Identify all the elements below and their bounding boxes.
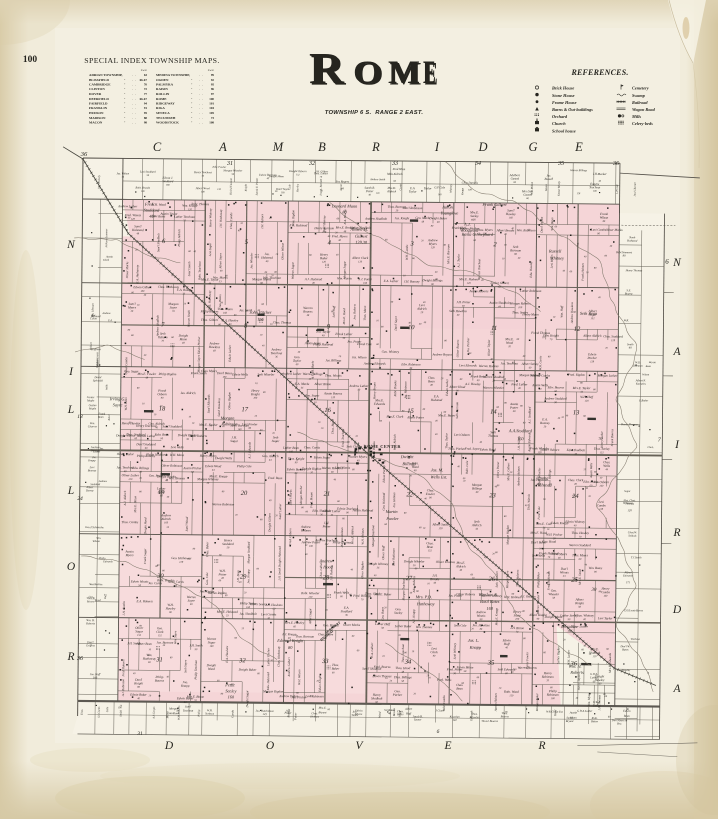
svg-text:Jas. Teachout: Jas. Teachout <box>501 361 519 365</box>
svg-text:E.A. Roberts: E.A. Roberts <box>136 599 154 603</box>
svg-text:Chas. Hathaway: Chas. Hathaway <box>277 646 281 667</box>
svg-text:Frank Sugar: Frank Sugar <box>143 548 147 566</box>
svg-text:11: 11 <box>491 325 497 332</box>
svg-text:Oliver Rigdon: Oliver Rigdon <box>227 392 231 410</box>
svg-text:. .: . . <box>199 73 203 77</box>
svg-text:Oliver Luther: Oliver Luther <box>323 509 341 513</box>
svg-text:Cole: Cole <box>105 706 109 712</box>
svg-text:Thos. Hawley: Thos. Hawley <box>571 531 589 535</box>
svg-text:Brick House: Brick House <box>551 86 574 91</box>
svg-text:Whitney: Whitney <box>550 255 564 260</box>
svg-text:Frank Bourns: Frank Bourns <box>610 428 614 447</box>
svg-text:Oliver Huff: Oliver Huff <box>381 544 385 559</box>
svg-text:Albert Sayre: Albert Sayre <box>218 252 222 269</box>
svg-text:Luther Robinson: Luther Robinson <box>519 289 542 293</box>
svg-text:Morgan Rigdon: Morgan Rigdon <box>506 525 510 546</box>
svg-text:Billings: Billings <box>402 461 416 466</box>
svg-text:Winnis: Winnis <box>545 184 548 191</box>
svg-text:Chas. Whitney: Chas. Whitney <box>575 613 594 617</box>
svg-text:Albert Knight: Albert Knight <box>528 613 547 617</box>
svg-text:Bitton: Bitton <box>591 720 598 723</box>
svg-text:156: 156 <box>257 317 264 322</box>
svg-text:Charver: Charver <box>88 425 98 428</box>
svg-text:Dewey: Dewey <box>85 489 94 492</box>
svg-text:W.O.Milton: W.O.Milton <box>531 181 534 195</box>
svg-text:Luther Seeley: Luther Seeley <box>559 613 578 617</box>
svg-text:E: E <box>423 55 436 91</box>
svg-text:Dwight Sugar: Dwight Sugar <box>245 689 249 708</box>
svg-text:Edwin Sugar: Edwin Sugar <box>313 455 331 459</box>
svg-text:D: D <box>672 604 682 616</box>
svg-text:92: 92 <box>211 78 215 82</box>
svg-text:Knapp: Knapp <box>461 187 464 196</box>
svg-text:Teachout: Teachout <box>631 638 641 641</box>
svg-text:Philip Teachout: Philip Teachout <box>194 660 198 681</box>
svg-text:Bean: Bean <box>456 687 463 691</box>
svg-text:17: 17 <box>242 406 249 413</box>
svg-text:Sam'l Shadbolt: Sam'l Shadbolt <box>156 233 160 252</box>
svg-text:Fred.Winn: Fred.Winn <box>392 167 406 171</box>
svg-text:Edwin Wood: Edwin Wood <box>204 464 222 468</box>
svg-text:Luther Bean: Luther Bean <box>282 446 299 450</box>
svg-text:Celery-beds: Celery-beds <box>632 121 653 126</box>
svg-text:Edwin Gilbert: Edwin Gilbert <box>132 285 151 289</box>
svg-text:A.J. Aldrich: A.J. Aldrich <box>123 490 127 506</box>
svg-text:Whitney: Whitney <box>450 183 453 193</box>
svg-text:Fred. Roberts: Fred. Roberts <box>121 659 125 678</box>
svg-text:Basil Bates: Basil Bates <box>480 599 500 604</box>
svg-text:Andrew Luther: Andrew Luther <box>281 372 302 376</box>
svg-text:120: 120 <box>628 509 633 512</box>
svg-text:Stone House: Stone House <box>552 93 575 98</box>
svg-text:DEERFIELD: DEERFIELD <box>89 97 109 101</box>
svg-text:. .: . . <box>132 102 136 106</box>
svg-text:33: 33 <box>391 161 398 167</box>
svg-text:Thos. Mann: Thos. Mann <box>363 305 367 320</box>
svg-text:Wm. Thomas: Wm. Thomas <box>416 625 433 629</box>
svg-text:A.J.: A.J. <box>463 222 471 227</box>
svg-text:Thomas: Thomas <box>488 434 499 438</box>
svg-text:Warren Wheeler: Warren Wheeler <box>483 386 505 390</box>
svg-text:A.S.Corpis: A.S.Corpis <box>153 707 156 720</box>
svg-text:Henry Bartram: Henry Bartram <box>313 226 334 230</box>
svg-text:Dwight Wheeler: Dwight Wheeler <box>403 559 426 563</box>
svg-text:Albert Aldrich: Albert Aldrich <box>582 334 602 338</box>
svg-text:Bates: Bates <box>622 648 628 651</box>
svg-text:Dan'l Stoddard: Dan'l Stoddard <box>135 442 156 446</box>
svg-text:Brooks: Brooks <box>392 707 396 716</box>
svg-text:Tanner: Tanner <box>414 719 423 722</box>
svg-text:Andrew Taylor: Andrew Taylor <box>278 694 299 698</box>
svg-text:Clark: Clark <box>103 259 110 262</box>
svg-text:A.A.Stoddard: A.A.Stoddard <box>508 428 533 433</box>
svg-text:66-67: 66-67 <box>140 97 148 101</box>
svg-text:Warren Wheeler: Warren Wheeler <box>536 593 540 614</box>
svg-text:Jno.V.Turner: Jno.V.Turner <box>634 181 637 196</box>
svg-text:Oliver Luther: Oliver Luther <box>571 624 589 628</box>
svg-text:Chas. Clark: Chas. Clark <box>568 478 584 482</box>
svg-text:Pettit: Pettit <box>224 682 235 687</box>
svg-text:Geo. Halstead: Geo. Halstead <box>382 492 386 510</box>
svg-text:W.H. Curtis: W.H. Curtis <box>538 355 542 370</box>
svg-text:RAISIN: RAISIN <box>156 87 168 91</box>
svg-text:Mrs.E. Baker: Mrs.E. Baker <box>437 413 456 417</box>
svg-text:Austin Halstead: Austin Halstead <box>352 508 374 512</box>
svg-text:Fred. Potter: Fred. Potter <box>446 667 463 671</box>
svg-text:Seeley: Seeley <box>225 688 236 693</box>
svg-text:Albert Seeley: Albert Seeley <box>521 362 540 366</box>
svg-text:Luther Pitcher: Luther Pitcher <box>266 647 270 667</box>
svg-text:Thos.L.Bourns: Thos.L.Bourns <box>481 720 498 723</box>
svg-text:A: A <box>672 346 681 358</box>
svg-text:I.H.Meeker: I.H.Meeker <box>592 172 608 176</box>
svg-text:ROLLIN: ROLLIN <box>156 92 170 96</box>
svg-text:E: E <box>574 140 583 154</box>
svg-text:36: 36 <box>612 161 619 167</box>
svg-text:FRANKLIN: FRANKLIN <box>89 106 108 110</box>
svg-text:Edw. Shadbolt: Edw. Shadbolt <box>566 448 586 452</box>
svg-text:Wood: Wood <box>95 599 102 602</box>
svg-text:PALMYRA: PALMYRA <box>156 83 174 87</box>
svg-text:Oliver Marks: Oliver Marks <box>343 623 361 627</box>
svg-text:Potter: Potter <box>283 711 292 715</box>
svg-text:Almira M.: Almira M. <box>349 227 368 232</box>
svg-text:Oliver Luther: Oliver Luther <box>122 473 140 477</box>
svg-text:Edw. Robinson: Edw. Robinson <box>400 362 421 366</box>
svg-text:Geo. Cole: Geo. Cole <box>205 572 209 585</box>
svg-text:Sugar: Sugar <box>272 439 280 443</box>
svg-text:E.A. Halstead: E.A. Halstead <box>288 223 307 227</box>
svg-text:Maple: Maple <box>86 399 95 402</box>
svg-text:Jas. Wheeler: Jas. Wheeler <box>249 252 253 269</box>
svg-text:70: 70 <box>144 83 148 87</box>
svg-text:Geo.F.Schmucke: Geo.F.Schmucke <box>85 526 104 529</box>
svg-text:Fowler: Fowler <box>385 516 399 521</box>
svg-text:19: 19 <box>158 489 165 496</box>
svg-text:Bourse: Bourse <box>625 293 634 296</box>
svg-text:Morgan Baker: Morgan Baker <box>535 692 539 712</box>
svg-text:73: 73 <box>211 116 215 120</box>
svg-text:ADRIAN TOWNSHIP,: ADRIAN TOWNSHIP, <box>89 73 123 77</box>
svg-text:Harmon: Harmon <box>632 365 643 368</box>
svg-text:TOWNSHIP 6 S. RANGE 2 EAST.: TOWNSHIP 6 S. RANGE 2 EAST. <box>325 110 424 116</box>
svg-text:Edw. Bourns: Edw. Bourns <box>547 385 565 389</box>
svg-text:18: 18 <box>159 405 166 412</box>
svg-text:. .: . . <box>132 116 136 120</box>
svg-text:Fred. Myers: Fred. Myers <box>331 234 348 238</box>
svg-text:Luther Teachout: Luther Teachout <box>173 215 195 219</box>
svg-text:Philip: Philip <box>198 709 201 717</box>
svg-text:Fred. Bean: Fred. Bean <box>267 476 283 480</box>
svg-text:Hawley: Hawley <box>296 183 299 193</box>
svg-text:A.J. Knapp: A.J. Knapp <box>281 632 297 636</box>
svg-text:105: 105 <box>209 111 214 115</box>
svg-text:Mrs.E. Baker: Mrs.E. Baker <box>373 592 392 596</box>
svg-text:13: 13 <box>77 414 83 420</box>
svg-text:. .: . . <box>199 111 203 115</box>
svg-text:John Pitcher: John Pitcher <box>249 310 271 315</box>
svg-text:122: 122 <box>453 719 458 722</box>
svg-text:Andrew Gilbert: Andrew Gilbert <box>287 657 291 677</box>
svg-text:A.: A. <box>588 653 592 656</box>
svg-text:Edw. Fowler: Edw. Fowler <box>211 166 227 169</box>
svg-text:Roberts: Roberts <box>85 622 95 625</box>
svg-text:Younglove: Younglove <box>441 210 459 215</box>
svg-text:W.H. Mann: W.H. Mann <box>170 453 185 457</box>
svg-text:Warren Billings: Warren Billings <box>302 372 323 376</box>
svg-text:31: 31 <box>226 161 233 167</box>
svg-text:31: 31 <box>136 731 143 737</box>
svg-text:Levi Winnis: Levi Winnis <box>334 466 351 470</box>
svg-text:Taylor: Taylor <box>424 186 433 190</box>
svg-text:Dwight Baker: Dwight Baker <box>238 668 258 672</box>
svg-text:Knapp: Knapp <box>180 684 190 688</box>
svg-text:Wm. Sayre: Wm. Sayre <box>173 630 177 644</box>
svg-text:Halstead: Halstead <box>430 398 443 402</box>
svg-text:Bates: Bates <box>397 712 404 716</box>
svg-text:Andrew Edwards: Andrew Edwards <box>363 361 387 365</box>
svg-text:Mrs.E. Hood: Mrs.E. Hood <box>529 531 547 535</box>
svg-text:J.H. Hathaway: J.H. Hathaway <box>219 209 223 228</box>
svg-text:Potter: Potter <box>293 712 297 721</box>
svg-text:Fred. Myers: Fred. Myers <box>550 552 567 556</box>
svg-text:77: 77 <box>144 92 148 96</box>
svg-text:160: 160 <box>93 676 98 679</box>
svg-text:Jackson Lummer: Jackson Lummer <box>105 228 108 248</box>
svg-text:100: 100 <box>209 97 214 101</box>
svg-text:Oliver Taylor: Oliver Taylor <box>487 339 491 356</box>
svg-text:Teachout: Teachout <box>183 708 194 712</box>
svg-text:Morgan Holmes: Morgan Holmes <box>340 527 344 549</box>
svg-text:35: 35 <box>557 161 564 167</box>
svg-text:MACON: MACON <box>89 121 103 125</box>
svg-text:Seeley: Seeley <box>394 611 403 615</box>
svg-text:Chas. Myers: Chas. Myers <box>201 369 218 373</box>
svg-text:Halstead: Halstead <box>535 482 552 487</box>
svg-text:Orchard: Orchard <box>552 114 568 119</box>
svg-text:Frank Holmes: Frank Holmes <box>581 262 585 282</box>
svg-text:CLINTON: CLINTON <box>89 87 105 91</box>
svg-text:A.J. Stoddard: A.J. Stoddard <box>527 406 531 424</box>
svg-text:DOVER: DOVER <box>89 92 102 96</box>
svg-text:Austin Wells: Austin Wells <box>531 383 549 387</box>
svg-text:R: R <box>537 740 545 752</box>
svg-text:32: 32 <box>238 657 246 664</box>
svg-text:Jas. Wilson: Jas. Wilson <box>352 355 367 359</box>
svg-text:M: M <box>388 55 420 91</box>
svg-text:Thos. Pitcher: Thos. Pitcher <box>448 447 466 451</box>
svg-text:Sam'l Hawkins: Sam'l Hawkins <box>217 397 221 416</box>
svg-text:Holmes: Holmes <box>300 528 312 532</box>
svg-text:Russell: Russell <box>548 248 562 253</box>
svg-text:Wm. Myers: Wm. Myers <box>587 692 591 707</box>
svg-text:108: 108 <box>209 121 214 125</box>
svg-text:139.30: 139.30 <box>355 240 368 245</box>
svg-text:Andrew Smith: Andrew Smith <box>369 178 386 181</box>
svg-text:Andrew Teachout: Andrew Teachout <box>314 538 337 542</box>
svg-text:Seth Hawkins: Seth Hawkins <box>449 309 467 313</box>
svg-text:Edwin Bonney: Edwin Bonney <box>286 467 306 471</box>
svg-text:Leonard Mann: Leonard Mann <box>331 203 358 208</box>
svg-text:Wilson: Wilson <box>93 540 101 543</box>
svg-text:Edwards: Edwards <box>102 560 112 563</box>
svg-text:OGDEN: OGDEN <box>156 78 169 82</box>
svg-text:Warren Robinson: Warren Robinson <box>212 502 235 506</box>
svg-text:Sam'l Shadbolt: Sam'l Shadbolt <box>362 667 381 671</box>
svg-text:Sam'l Marks: Sam'l Marks <box>288 489 292 505</box>
svg-text:Wm. Bates: Wm. Bates <box>589 566 603 570</box>
svg-text:Robt. Brooks: Robt. Brooks <box>393 380 397 398</box>
svg-text:Jas. Aldrich: Jas. Aldrich <box>180 391 196 395</box>
svg-text:Levi Combs: Levi Combs <box>260 612 277 616</box>
svg-text:66-67: 66-67 <box>140 78 148 82</box>
svg-text:Jno. Sugar: Jno. Sugar <box>305 393 320 397</box>
svg-text:A.J. Robinson: A.J. Robinson <box>121 679 125 698</box>
svg-text:. .: . . <box>132 106 136 110</box>
svg-text:Martin: Martin <box>385 509 398 514</box>
svg-text:A.J. Hawley: A.J. Hawley <box>464 382 481 386</box>
svg-text:Jas. M.: Jas. M. <box>431 467 444 472</box>
svg-text:Sam'l Edwards: Sam'l Edwards <box>207 394 211 413</box>
svg-text:Dwight Fowler: Dwight Fowler <box>177 433 198 437</box>
svg-text:Mrs. P.D.: Mrs. P.D. <box>415 594 432 599</box>
svg-text:Edwards: Edwards <box>469 710 473 722</box>
svg-text:Oliver Robinson: Oliver Robinson <box>161 464 182 468</box>
svg-text:A.J. Hawkins: A.J. Hawkins <box>265 603 284 607</box>
svg-text:Bean: Bean <box>624 714 631 718</box>
svg-text:Sellock: Sellock <box>628 535 637 538</box>
svg-text:63: 63 <box>144 73 148 77</box>
svg-text:Bourns: Bourns <box>501 715 509 718</box>
svg-text:Dwight Mann: Dwight Mann <box>268 175 285 178</box>
svg-text:Swamp: Swamp <box>632 93 646 98</box>
svg-text:Curtis: Curtis <box>399 184 402 191</box>
svg-text:L.P.Cole: L.P.Cole <box>616 184 619 195</box>
svg-text:100: 100 <box>23 55 38 65</box>
svg-text:Austin Shadbolt: Austin Shadbolt <box>488 301 509 305</box>
svg-text:F.A.: F.A. <box>107 319 113 322</box>
svg-text:Oliver Marks: Oliver Marks <box>606 228 624 232</box>
svg-text:Dwight Gilbert: Dwight Gilbert <box>268 513 272 533</box>
svg-text:Seth Cole: Seth Cole <box>454 623 467 627</box>
svg-text:Griffins: Griffins <box>86 644 95 647</box>
svg-text:Seth Bean: Seth Bean <box>580 311 597 316</box>
svg-text:Maple: Maple <box>88 407 97 410</box>
svg-text:Jno. A. Bennett: Jno. A. Bennett <box>320 179 323 196</box>
svg-text:Austin Holmes: Austin Holmes <box>494 692 498 712</box>
svg-text:Baker: Baker <box>108 413 111 420</box>
svg-text:School house: School house <box>552 128 576 133</box>
svg-text:W.H. Combs: W.H. Combs <box>405 244 409 260</box>
svg-text:Bryant: Bryant <box>566 720 574 723</box>
svg-text:BLISSFIELD: BLISSFIELD <box>89 78 110 82</box>
svg-text:L: L <box>67 404 74 416</box>
svg-text:J.H. Bonney: J.H. Bonney <box>404 279 420 283</box>
svg-text:Morgan Marks: Morgan Marks <box>251 277 272 281</box>
svg-text:Myers: Myers <box>125 553 135 557</box>
svg-text:Wilson: Wilson <box>642 373 650 376</box>
svg-text:I: I <box>434 140 440 154</box>
svg-text:Edward Knight: Edward Knight <box>276 638 304 643</box>
svg-text:Philip Baker: Philip Baker <box>536 571 540 589</box>
svg-text:J.H. Smith: J.H. Smith <box>277 567 281 580</box>
svg-text:Levi Osborn: Levi Osborn <box>453 433 470 437</box>
svg-text:Church: Church <box>552 121 566 126</box>
svg-text:Mrs.E. Fowler: Mrs.E. Fowler <box>136 372 156 376</box>
svg-text:Seth Whitney: Seth Whitney <box>453 642 457 659</box>
svg-text:123: 123 <box>263 713 268 716</box>
svg-text:Morgan Teachout: Morgan Teachout <box>371 525 375 548</box>
svg-text:R: R <box>66 651 74 663</box>
svg-text:Edwin Whitney: Edwin Whitney <box>564 520 585 524</box>
svg-text:72: 72 <box>144 87 148 91</box>
svg-text:Railroad: Railroad <box>632 100 648 105</box>
svg-text:Wood: Wood <box>208 667 216 671</box>
svg-text:Robt. Wheeler: Robt. Wheeler <box>300 591 320 595</box>
svg-text:Mrs.E. Taylor: Mrs.E. Taylor <box>572 386 591 390</box>
svg-text:Ira Rogers: Ira Rogers <box>335 179 350 183</box>
svg-text:Thos. Seeley: Thos. Seeley <box>512 310 529 314</box>
svg-text:Stoddard: Stoddard <box>90 483 100 486</box>
svg-text:24: 24 <box>77 495 83 502</box>
svg-text:Andrew Stoddard: Andrew Stoddard <box>544 396 568 400</box>
svg-text:Dwight Baker: Dwight Baker <box>428 216 448 220</box>
svg-text:Jno. Hawkins: Jno. Hawkins <box>472 623 490 627</box>
svg-text:MEDINA TOWNSHIP,: MEDINA TOWNSHIP, <box>156 73 190 77</box>
svg-text:Warren Holmes: Warren Holmes <box>479 364 500 368</box>
svg-text:Edwin Winnis: Edwin Winnis <box>130 579 149 583</box>
svg-text:J.Clark: J.Clark <box>436 709 445 712</box>
svg-text:Levi Edwards: Levi Edwards <box>458 363 477 367</box>
svg-text:Austin Wells: Austin Wells <box>589 462 593 479</box>
svg-text:Andrew Bryant: Andrew Bryant <box>431 352 451 356</box>
svg-text:Andrew Luther: Andrew Luther <box>348 384 369 388</box>
svg-text:J.H. Combs: J.H. Combs <box>122 600 126 615</box>
svg-text:Albert Sugar: Albert Sugar <box>308 607 312 625</box>
svg-text:Henry Thomas: Henry Thomas <box>625 269 643 272</box>
svg-text:Jas. Shadbolt: Jas. Shadbolt <box>239 612 256 616</box>
svg-text:171: 171 <box>626 581 631 584</box>
svg-text:E.A. Gilbert: E.A. Gilbert <box>370 642 374 658</box>
svg-text:Oliver Roberts: Oliver Roberts <box>456 592 476 596</box>
svg-text:95: 95 <box>211 83 215 87</box>
svg-text:E: E <box>443 740 451 752</box>
svg-text:Edwin Luther: Edwin Luther <box>228 344 232 363</box>
svg-text:MADISON: MADISON <box>89 116 106 120</box>
svg-text:Bourns: Bourns <box>155 679 165 683</box>
svg-text:R: R <box>371 140 380 154</box>
svg-text:M: M <box>272 140 284 154</box>
svg-text:Dwight Hood: Dwight Hood <box>143 517 147 535</box>
svg-text:Morgan Rigdon: Morgan Rigdon <box>262 689 284 693</box>
svg-text:Edwin Pitcher: Edwin Pitcher <box>197 336 201 356</box>
svg-text:Holmes: Holmes <box>309 715 319 718</box>
svg-text:Mrs.E. Smith: Mrs.E. Smith <box>578 568 582 586</box>
svg-text:PAGE: PAGE <box>141 69 148 72</box>
svg-text:Andrew: Andrew <box>319 558 333 563</box>
svg-text:Levi Robinson: Levi Robinson <box>304 694 324 698</box>
svg-text:Luther: Luther <box>589 676 598 679</box>
svg-text:. .: . . <box>132 97 136 101</box>
svg-text:E.A. Hawkins: E.A. Hawkins <box>225 645 229 664</box>
svg-text:Levi Robinson: Levi Robinson <box>391 548 395 567</box>
svg-text:A.J. Edwards: A.J. Edwards <box>248 441 252 459</box>
svg-text:W.H. Pitcher: W.H. Pitcher <box>546 533 563 537</box>
svg-text:E.A. Marks: E.A. Marks <box>294 382 310 386</box>
svg-text:Thos. Mann: Thos. Mann <box>217 307 233 311</box>
svg-text:Mrs.E. Hood: Mrs.E. Hood <box>342 308 346 326</box>
svg-text:Edwin Thomas: Edwin Thomas <box>371 674 392 678</box>
